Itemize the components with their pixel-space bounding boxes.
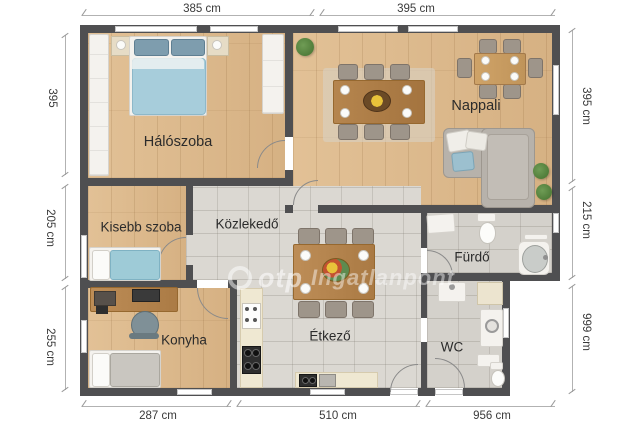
burner-icon (252, 349, 260, 357)
window-konyha-bottom (177, 389, 212, 395)
bed-mattress (110, 250, 160, 280)
plate (340, 85, 350, 95)
otp-logo-icon (228, 266, 252, 290)
wall-furdo-left (421, 205, 427, 248)
wall-kisebb-right (186, 265, 193, 280)
dimension-line (65, 186, 66, 279)
wall-haloszoba-nappali (285, 33, 293, 137)
dimension-line (572, 286, 573, 392)
bed-pillow (171, 39, 205, 56)
side-chair (503, 84, 521, 99)
laptop-icon (132, 289, 160, 302)
washing-machine-door-icon (485, 319, 499, 333)
dim-label-bottom-2: 510 cm (319, 410, 357, 422)
dining-chair (352, 228, 374, 245)
dimension-line (82, 15, 314, 16)
wall-haloszoba-bottom (80, 178, 293, 186)
watermark-brand: otp (258, 263, 303, 294)
plate (340, 108, 350, 118)
window-wc (503, 308, 509, 338)
wall-wc-left (421, 342, 427, 388)
plant-icon (536, 184, 552, 200)
dining-chair (352, 301, 374, 318)
floor-plan: Hálószoba Nappali Kisebb szoba Közlekedő… (0, 0, 640, 426)
side-chair (479, 84, 497, 99)
room-label-wc: WC (441, 340, 464, 355)
plate (402, 108, 412, 118)
plate (300, 250, 311, 261)
desk-pad (94, 291, 116, 306)
hob-knob (253, 307, 257, 311)
dim-label-left-1: 395 (46, 88, 58, 107)
lamp-icon (116, 40, 126, 50)
door-threshold-wc (435, 389, 463, 395)
plate (510, 72, 519, 81)
room-label-konyha: Konyha (161, 333, 207, 348)
toilet-tank (477, 213, 496, 222)
burner-icon (244, 362, 252, 370)
duvet-fold (132, 58, 204, 69)
dimension-line (65, 35, 66, 175)
toilet-bowl (491, 370, 505, 387)
burner-icon (244, 349, 252, 357)
side-chair (479, 39, 497, 54)
hob-knob (245, 307, 249, 311)
bed-pillow (134, 39, 169, 56)
dimension-line (572, 188, 573, 278)
plant-icon (296, 38, 314, 56)
wall-right-upper (552, 25, 560, 281)
plate (481, 56, 490, 65)
room-label-kozlekedo: Közlekedő (215, 217, 278, 232)
hob-knob (245, 318, 249, 322)
bathroom-cabinet (426, 213, 455, 234)
dining-chair (298, 301, 320, 318)
dim-label-right-2: 215 cm (580, 201, 592, 239)
burner-icon (252, 362, 260, 370)
wall-bottom-segment (418, 388, 435, 396)
window-nappali (338, 26, 398, 32)
dining-chair (390, 124, 410, 140)
dining-chair (364, 124, 384, 140)
window-haloszoba (210, 26, 258, 32)
faucet-icon (543, 255, 548, 260)
side-chair (503, 39, 521, 54)
wall-nappali-bottom (285, 205, 293, 213)
kitchen-sink (319, 374, 336, 387)
lamp-icon (212, 40, 222, 50)
sofa-cushion (487, 134, 529, 200)
dining-chair (390, 64, 410, 80)
window-nappali (408, 26, 458, 32)
desk-item (96, 306, 108, 314)
dining-chair (325, 228, 347, 245)
office-chair-back (129, 333, 159, 339)
burner-icon (302, 377, 309, 384)
room-label-etkezo: Étkező (309, 329, 350, 344)
wc-cabinet (477, 282, 503, 305)
fruit-bowl (363, 90, 391, 112)
watermark-name: Ingatlanpont (311, 265, 455, 291)
window-haloszoba (115, 26, 197, 32)
bed-pillow (92, 353, 110, 387)
hob-knob (253, 318, 257, 322)
dim-label-left-2: 205 cm (44, 209, 56, 247)
dim-label-top-2: 395 cm (397, 3, 435, 15)
bed-pillow (92, 250, 110, 280)
window-nappali-right (553, 65, 559, 115)
plate (510, 56, 519, 65)
wall-kisebb-right (186, 186, 193, 235)
room-label-haloszoba: Hálószoba (144, 134, 213, 150)
plate (402, 85, 412, 95)
dim-label-right-3: 999 cm (580, 313, 592, 351)
dim-label-right-1: 395 cm (580, 87, 592, 125)
window-konyha-left (81, 320, 87, 353)
sofa-pillow (451, 151, 475, 172)
side-chair (528, 58, 543, 78)
dim-label-bottom-3: 956 cm (473, 410, 511, 422)
dimension-line (65, 287, 66, 390)
dining-chair (338, 124, 358, 140)
vanity-shelf (524, 234, 548, 240)
dim-label-top-1: 385 cm (183, 3, 221, 15)
dim-label-left-3: 255 cm (44, 328, 56, 366)
dimension-line (237, 406, 420, 407)
wall-konyha-right (230, 280, 237, 388)
watermark: otp Ingatlanpont (228, 262, 455, 294)
toilet-tank (490, 362, 503, 370)
side-chair (457, 58, 472, 78)
toilet-bowl (479, 222, 496, 244)
sofa-pillow (465, 131, 488, 152)
burner-icon (309, 377, 316, 384)
window-kisebb-szoba (81, 235, 87, 278)
plate (358, 250, 369, 261)
room-label-nappali: Nappali (451, 98, 500, 114)
dining-chair (298, 228, 320, 245)
dimension-line (320, 15, 555, 16)
dimension-line (426, 406, 555, 407)
plate (481, 72, 490, 81)
dining-chair (325, 301, 347, 318)
plant-icon (533, 163, 549, 179)
window-furdo (553, 213, 559, 233)
wardrobe (89, 34, 109, 176)
dim-label-bottom-1: 287 cm (139, 410, 177, 422)
dimension-line (82, 406, 231, 407)
bed-mattress (110, 353, 160, 387)
dining-chair (338, 64, 358, 80)
room-label-kisebb-szoba: Kisebb szoba (100, 220, 181, 235)
dimension-line (572, 30, 573, 182)
window-etkezo (310, 389, 345, 395)
closet (262, 34, 284, 114)
dining-chair (364, 64, 384, 80)
room-label-furdo: Fürdő (454, 250, 489, 265)
